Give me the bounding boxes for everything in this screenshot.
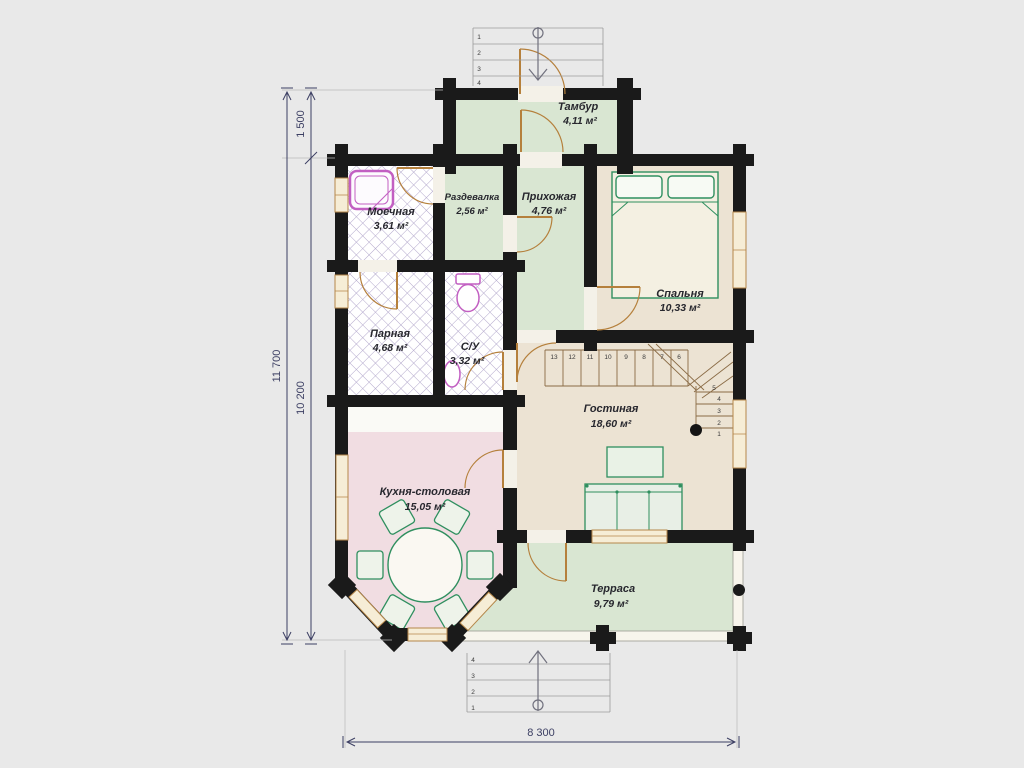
toilet [456,274,480,312]
step-num: 3 [471,673,475,680]
floor-plan-drawing: 13 12 11 10 9 8 7 6 5 4 3 2 1 [0,0,1024,768]
label-spalnya: Спальня [656,288,704,300]
area-moechnaya: 3,61 м² [374,220,409,232]
sofa [585,484,682,532]
stair-num: 8 [642,354,646,361]
entry-direction-arrow [529,27,547,80]
step-num: 2 [471,689,475,696]
stair-num: 10 [604,354,612,361]
corner-shower [350,171,393,209]
area-spalnya: 10,33 м² [660,302,701,314]
label-parnaya: Парная [370,328,411,340]
area-terrace: 9,79 м² [594,598,629,610]
kitchen-counter-strip [348,407,503,432]
stair-num: 6 [677,354,681,361]
stair-num: 13 [550,354,558,361]
step-num: 4 [477,80,481,87]
window [592,530,667,543]
area-razdevalka: 2,56 м² [455,206,488,217]
window [336,455,348,540]
dim-left-inner-bottom: 10 200 [295,381,307,415]
stair-num: 1 [717,431,721,438]
entry-steps-top: 1 2 3 4 [473,27,603,87]
label-su: С/У [461,341,481,353]
area-tambur: 4,11 м² [562,115,597,127]
stair-num: 3 [717,408,721,415]
stair-num: 7 [660,354,664,361]
stair-num: 5 [712,385,716,392]
step-num: 4 [471,657,475,664]
area-parnaya: 4,68 м² [372,342,408,354]
stair-num: 4 [717,396,721,403]
step-num: 1 [471,705,475,712]
dim-left-inner-top: 1 500 [295,110,307,138]
area-kitchen: 15,05 м² [405,501,446,513]
label-moechnaya: Моечная [367,206,415,218]
coffee-table [607,447,663,477]
label-razdevalka: Раздевалка [445,192,500,203]
window [408,628,447,641]
stair-num: 2 [717,420,721,427]
entry-steps-bottom: 4 3 2 1 [467,651,610,712]
bed [612,172,718,298]
step-num: 2 [477,50,481,57]
area-gostinaya: 18,60 м² [591,418,632,430]
label-terrace: Терраса [591,583,635,595]
dim-left-outer: 11 700 [271,350,283,383]
dim-bottom: 8 300 [527,727,555,739]
label-tambur: Тамбур [558,101,599,113]
stair-num: 12 [568,354,576,361]
step-num: 3 [477,66,481,73]
stair-num: 9 [624,354,628,361]
terrace-post [733,584,745,596]
floor-plan-screenshot: 13 12 11 10 9 8 7 6 5 4 3 2 1 [0,0,1024,768]
entry-direction-arrow [529,651,547,711]
step-num: 1 [477,34,481,41]
area-su: 3,32 м² [450,355,485,367]
stair-num: 11 [587,354,594,361]
label-kitchen: Кухня-столовая [380,486,471,498]
label-gostinaya: Гостиная [584,403,639,415]
label-prihozhaya: Прихожая [522,191,577,203]
window [335,275,348,308]
dining-table [388,528,462,602]
area-prihozhaya: 4,76 м² [531,205,567,217]
stair-newel-post [690,424,702,436]
